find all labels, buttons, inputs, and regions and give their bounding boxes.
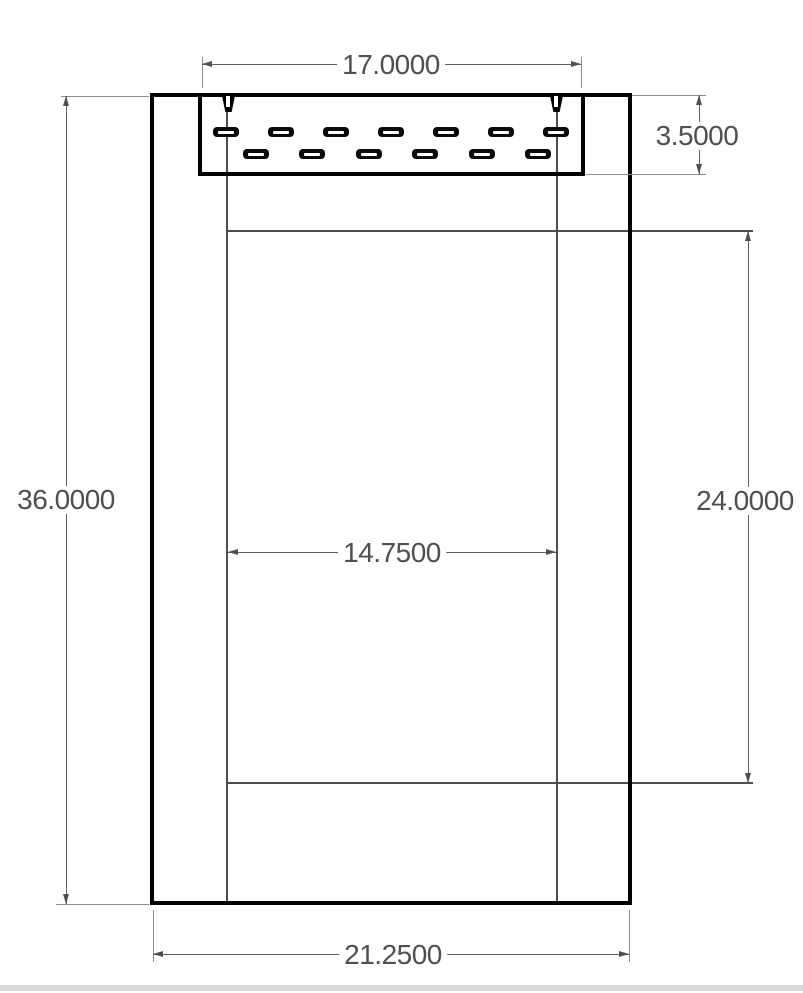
dimension-line [202,64,581,65]
dimension-label: 24.0000 [691,487,799,515]
slot-opening [361,153,377,156]
slot-opening [248,153,264,156]
slot-opening [417,153,433,156]
dimension-label: 3.5000 [651,122,744,150]
outer-frame [150,93,632,905]
slot-opening [304,153,320,156]
slot-opening [474,153,490,156]
slot-opening [218,131,234,134]
dimension-label: 36.0000 [12,486,120,514]
vent-slot [268,127,294,137]
slot-opening [548,131,564,134]
arrowhead-up-icon [745,231,751,241]
slot-opening [273,131,289,134]
vent-slot [356,149,382,159]
extension-line [632,95,706,96]
arrowhead-down-icon [63,894,69,904]
arrowhead-right-icon [571,61,581,67]
vent-slot [469,149,495,159]
vent-slot [488,127,514,137]
vent-slot [525,149,551,159]
vent-slot [213,127,239,137]
dimension-label: 21.2500 [339,941,447,969]
extension-line [202,57,203,88]
dimension-line [699,95,700,174]
vent-slot [433,127,459,137]
arrowhead-down-icon [696,164,702,174]
vent-slot [299,149,325,159]
dimension-line [748,231,749,783]
extension-line [56,904,149,905]
dimension-line [66,96,67,904]
arrowhead-up-icon [696,95,702,105]
extension-line [629,910,630,962]
cad-drawing-canvas: 17.0000 3.5000 36.0000 24.0000 14.7500 [0,0,803,993]
dimension-label: 17.0000 [337,51,445,79]
slot-opening [438,131,454,134]
clip-slot [554,96,558,107]
clip-slot [226,96,230,107]
arrowhead-left-icon [153,951,163,957]
vent-slot [243,149,269,159]
arrowhead-right-icon [619,951,629,957]
slot-opening [383,131,399,134]
extension-line [153,910,154,962]
vent-slot [378,127,404,137]
extension-line [581,57,582,88]
arrowhead-up-icon [63,96,69,106]
vent-slot [543,127,569,137]
window-bottom-bar [0,985,803,991]
slot-opening [493,131,509,134]
slot-opening [530,153,546,156]
slot-opening [328,131,344,134]
vent-slot [323,127,349,137]
dimension-line [153,954,629,955]
arrowhead-left-icon [202,61,212,67]
vent-slot [412,149,438,159]
extension-line [61,96,149,97]
